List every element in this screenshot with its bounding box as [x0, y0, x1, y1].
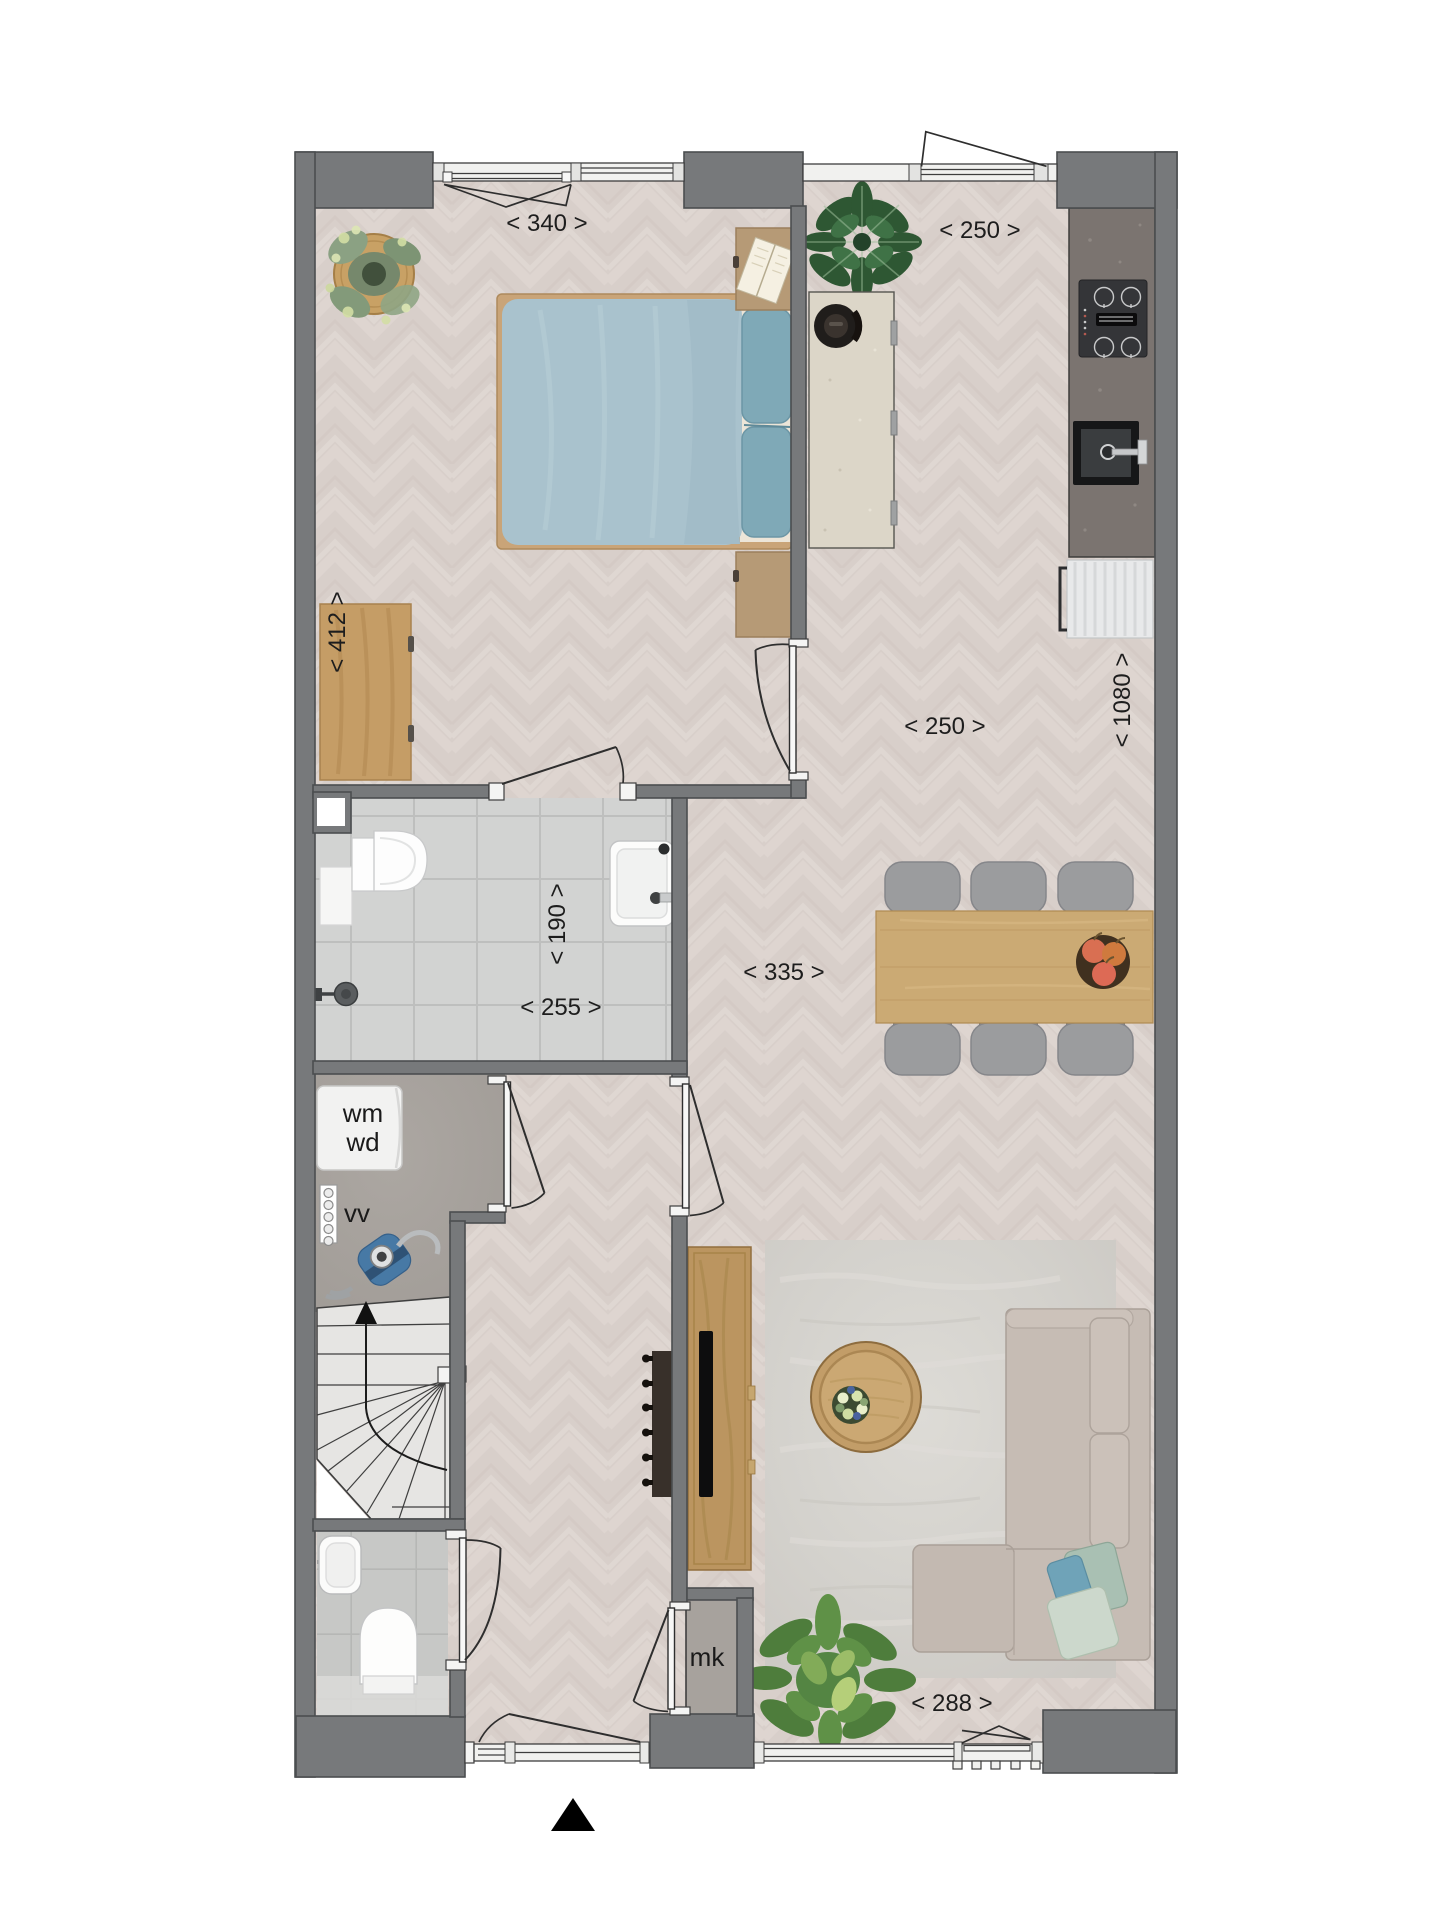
svg-text:wm: wm	[342, 1098, 383, 1128]
svg-text:wd: wd	[345, 1127, 379, 1157]
svg-text:< 335 >: < 335 >	[743, 959, 824, 986]
svg-text:< 255 >: < 255 >	[520, 994, 601, 1021]
svg-text:< 250 >: < 250 >	[939, 217, 1020, 244]
svg-text:vv: vv	[344, 1198, 370, 1228]
svg-text:< 412 >: < 412 >	[324, 591, 351, 672]
svg-text:mk: mk	[690, 1642, 726, 1672]
svg-text:< 250 >: < 250 >	[904, 713, 985, 740]
svg-text:< 190 >: < 190 >	[544, 883, 571, 964]
svg-text:< 340 >: < 340 >	[506, 210, 587, 237]
svg-text:< 288 >: < 288 >	[911, 1690, 992, 1717]
svg-text:< 1080 >: < 1080 >	[1109, 653, 1136, 748]
